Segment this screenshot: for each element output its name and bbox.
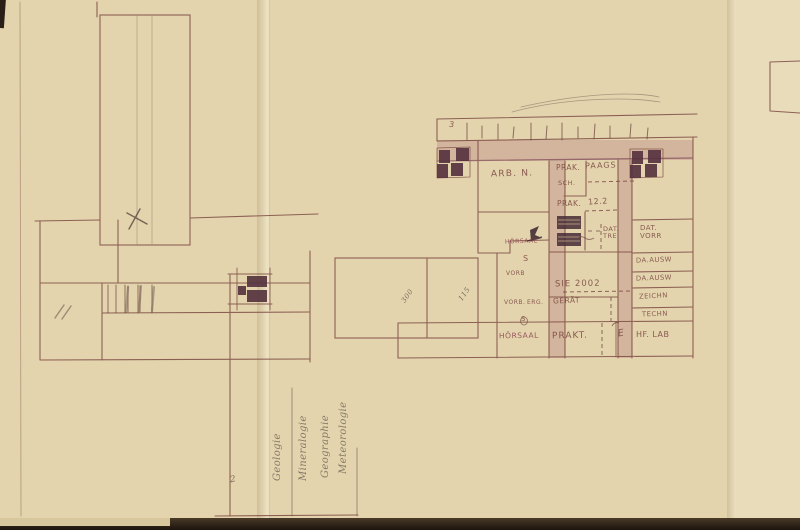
room-label-paags: PAAGS <box>585 160 617 170</box>
handwriting-line-4: Meteorologie <box>338 402 349 474</box>
room-label-erg: ERG. <box>527 300 544 307</box>
room-label-prakt: PRAKT. <box>552 331 588 342</box>
room-label-zeichn: ZEICHN <box>639 292 668 301</box>
room-label-geraet: GERÄT <box>553 297 580 307</box>
room-label-techn: TECHN <box>642 311 668 320</box>
room-label-da-ausw-1: DA.AUSW <box>636 256 672 265</box>
room-label-da-ausw-2: DA.AUSW <box>636 274 672 283</box>
plan-linework <box>0 0 800 530</box>
photo-of-plan: { "drawing": { "type": "hand-drawn archi… <box>0 0 800 530</box>
room-label-arb-n: ARB. N. <box>491 168 534 179</box>
handwriting-line-2: Mineralogie <box>298 415 309 481</box>
handwriting-line-1: Geologie <box>272 433 283 481</box>
pencil-marks <box>55 16 660 516</box>
wing-hatch-pencil <box>126 286 154 312</box>
room-label-sie-2002: SIE 2002 <box>555 280 601 291</box>
room-label-s-mark: S <box>521 315 526 323</box>
room-label-vorb-upper: VORB <box>506 271 525 278</box>
handwriting-line-3: Geographie <box>320 415 331 478</box>
checker-block-wing <box>238 276 267 302</box>
room-label-hf-lab: HF. LAB <box>636 330 670 339</box>
room-label-dat-vorr: DAT. VORR <box>640 224 662 240</box>
room-label-s: S <box>523 254 529 263</box>
room-label-hoersaal-upper: HÖRSAAL <box>505 238 538 246</box>
room-label-sch: SCH. <box>558 180 576 187</box>
wing-ticks <box>108 285 152 313</box>
room-label-dat-tre: DAT. TRE <box>603 226 619 241</box>
room-label-prak-lower: PRAK. <box>557 200 581 209</box>
room-label-hoersaal-main: HÖRSAAL <box>499 332 539 341</box>
column-ticks <box>467 123 648 140</box>
annotation-2: 2 <box>229 475 237 486</box>
room-label-vorb-lower: VORB. <box>504 300 525 307</box>
room-label-prak-upper: PRAK. <box>556 164 580 173</box>
room-label-12-2: 12.2 <box>588 196 608 207</box>
